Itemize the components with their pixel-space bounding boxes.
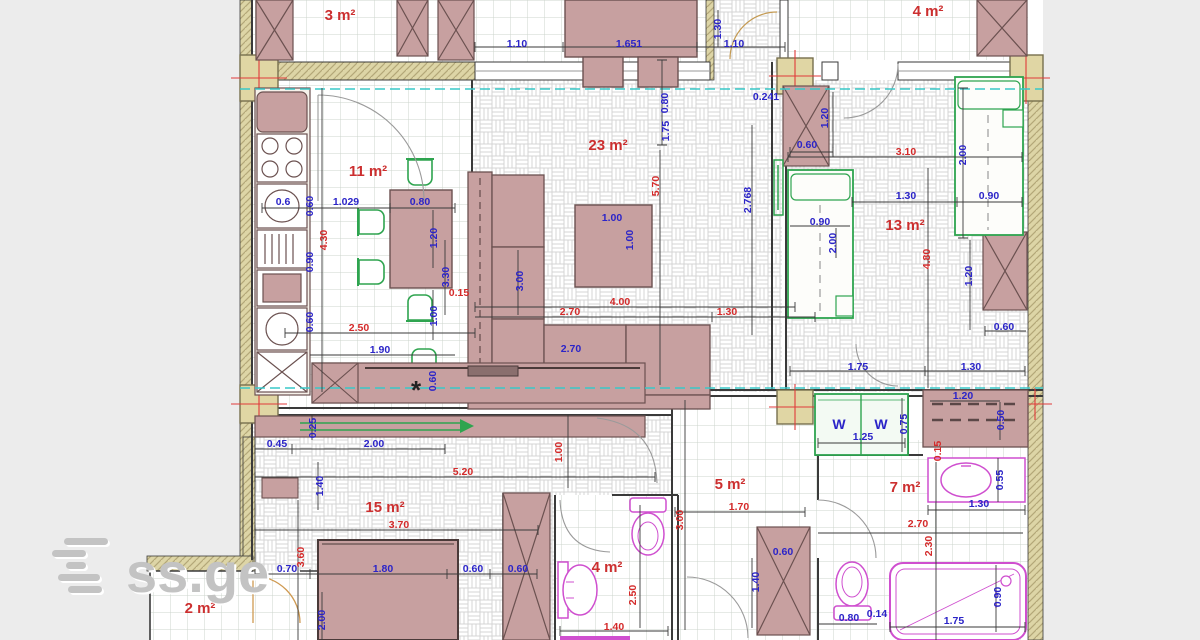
dimension-label: 0.75	[898, 414, 910, 435]
wardrobe	[757, 527, 810, 635]
dimension-label: 1.40	[314, 476, 326, 497]
dimension-label: 1.20	[428, 228, 440, 249]
dimension-label: 1.10	[724, 38, 745, 50]
kitchen-counter	[255, 88, 310, 395]
room-area-label: 5 m²	[715, 476, 746, 493]
room-area-label: 15 m²	[365, 499, 404, 516]
dimension-label: 2.768	[742, 187, 754, 213]
dimension-label: 4.80	[921, 249, 933, 270]
room-area-label: 4 m²	[913, 3, 944, 20]
dimension-label: 0.90	[304, 252, 316, 273]
room-area-label: 23 m²	[588, 137, 627, 154]
dimension-label: 0.60	[797, 139, 818, 151]
duct-shaft	[923, 390, 1028, 447]
dimension-label: 1.75	[944, 615, 965, 627]
dimension-label: 0.55	[994, 470, 1006, 491]
dimension-label: 1.00	[602, 212, 623, 224]
laundry-niche	[815, 394, 908, 455]
pillar	[438, 0, 474, 60]
dimension-label: 0.50	[995, 410, 1007, 431]
pillar	[977, 0, 1027, 56]
dimension-label: 0.25	[307, 418, 319, 439]
vanity-sink	[928, 458, 1025, 502]
sill-3m-left	[252, 62, 475, 80]
wall-right	[1028, 55, 1043, 640]
dimension-label: 5.70	[650, 176, 662, 197]
stove	[257, 134, 307, 182]
dimension-label: 0.60	[463, 563, 484, 575]
dimension-label: 2.30	[923, 536, 935, 557]
dimension-label: 2.00	[316, 610, 328, 631]
dishwasher	[257, 230, 307, 268]
chair	[358, 258, 384, 286]
room-area-label: 7 m²	[890, 479, 921, 496]
dimension-label: 4.30	[318, 230, 330, 251]
dimension-label: 0.60	[304, 312, 316, 333]
dimension-label: 2.70	[908, 518, 929, 530]
dimension-label: 1.40	[604, 621, 625, 633]
dimension-label: 1.10	[507, 38, 528, 50]
dimension-label: 2.70	[561, 343, 582, 355]
dimension-label: 0.90	[810, 216, 831, 228]
floor-plan-svg: ss.ge	[0, 0, 1200, 640]
ssge-logo-text: ss.ge	[126, 541, 269, 604]
tv-cabinet	[312, 363, 645, 403]
tv	[468, 366, 518, 376]
dimension-label: 1.90	[370, 344, 391, 356]
dimension-label: 0.80	[410, 196, 431, 208]
window-4m-a	[822, 62, 838, 80]
dimension-label: 0.60	[508, 563, 529, 575]
floor-plan-page: ss.ge	[0, 0, 1200, 640]
dimension-label: 1.25	[853, 431, 874, 443]
bathtub	[890, 563, 1026, 640]
dimension-label: 1.30	[961, 361, 982, 373]
dimension-label: 0.45	[267, 438, 288, 450]
dimension-label: 5.20	[453, 466, 474, 478]
dimension-label: 1.30	[896, 190, 917, 202]
dimension-label: 3.70	[389, 519, 410, 531]
fridge	[257, 92, 307, 132]
dimension-label: 1.30	[712, 19, 724, 40]
shelf	[262, 478, 298, 498]
dimension-label: 3.00	[674, 510, 686, 531]
dimension-label: 0.15	[449, 287, 470, 299]
washing-machine-label: W	[832, 416, 846, 432]
dimension-label: 1.20	[819, 108, 831, 129]
bed-15m	[318, 540, 458, 640]
chair	[358, 208, 384, 236]
toilet	[630, 498, 666, 555]
sink-round	[257, 308, 307, 350]
dimension-label: 1.75	[660, 121, 672, 142]
dimension-label: 1.20	[953, 390, 974, 402]
dimension-label: 1.75	[848, 361, 869, 373]
dimension-label: 0.60	[304, 196, 316, 217]
dimension-label: 2.70	[560, 306, 581, 318]
oven	[257, 270, 307, 306]
dimension-label: 1.00	[624, 230, 636, 251]
dimension-label: 1.80	[373, 563, 394, 575]
dimension-label: 3.00	[514, 271, 526, 292]
dining-chair	[583, 57, 623, 87]
dimension-label: 1.40	[750, 572, 762, 593]
dimension-label: 4.00	[610, 296, 631, 308]
dimension-label: 0.60	[773, 546, 794, 558]
dimension-label: 0.14	[867, 608, 888, 620]
dimension-label: 1.30	[969, 498, 990, 510]
dimension-label: 2.50	[349, 322, 370, 334]
dimension-label: 2.00	[364, 438, 385, 450]
dimension-label: 0.15	[932, 441, 944, 462]
cabinet	[257, 352, 307, 392]
dimension-label: 2.50	[627, 585, 639, 606]
wall-balcony4-left	[780, 0, 788, 62]
dimension-label: 0.90	[992, 587, 1004, 608]
pillar	[397, 0, 428, 56]
dimension-label: 3.10	[896, 146, 917, 158]
dimension-label: 1.651	[616, 38, 642, 50]
dimension-label: 0.80	[839, 612, 860, 624]
dimension-label: 1.70	[729, 501, 750, 513]
bed-13m-left	[788, 170, 853, 318]
room-area-label: 13 m²	[885, 217, 924, 234]
dimension-label: 0.60	[994, 321, 1015, 333]
dining-chair	[638, 57, 678, 87]
dimension-label: 1.00	[553, 442, 565, 463]
room-area-label: 4 m²	[592, 559, 623, 576]
dimension-label: 0.6	[276, 196, 291, 208]
dimension-label: 0.90	[979, 190, 1000, 202]
star-symbol: *	[411, 375, 422, 405]
dimension-label: 1.00	[428, 306, 440, 327]
dimension-label: 0.80	[659, 93, 671, 114]
dimension-label: 1.029	[333, 196, 359, 208]
dimension-label: 1.20	[963, 266, 975, 287]
pillar	[256, 0, 293, 60]
dimension-label: 0.60	[427, 371, 439, 392]
dimension-label: 0.70	[277, 563, 298, 575]
dimension-label: 2.00	[957, 145, 969, 166]
room-area-label: 11 m²	[349, 163, 387, 180]
dimension-label: 3.30	[440, 267, 452, 288]
shower-strip	[560, 636, 630, 640]
dimension-label: 1.30	[717, 306, 738, 318]
washing-machine-label: W	[874, 416, 888, 432]
room-area-label: 3 m²	[325, 7, 356, 24]
wardrobe	[983, 232, 1027, 310]
dimension-label: 0.241	[753, 91, 779, 103]
dimension-label: 2.00	[827, 233, 839, 254]
